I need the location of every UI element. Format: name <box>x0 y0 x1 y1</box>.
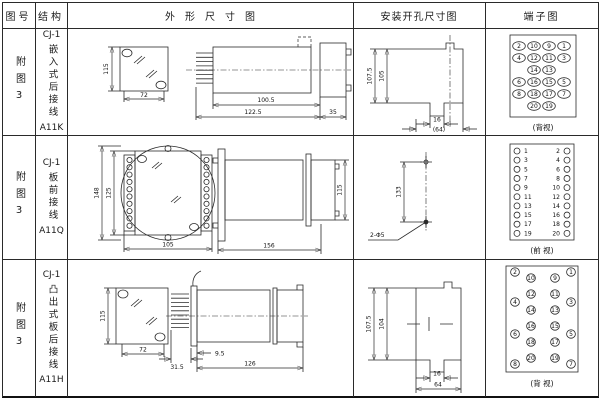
outline-drawing-row1: 115 72 100.5 122.5 35 <box>68 29 353 135</box>
terminal-number: 5 <box>569 331 573 338</box>
terminal-number: 7 <box>562 91 566 98</box>
terminal-grid: 2109141211314136161558181772019 <box>513 42 571 111</box>
terminal-number: 12 <box>527 291 535 298</box>
view-label: (前 视) <box>530 245 553 255</box>
terminal-circle <box>564 185 570 191</box>
terminal-number: 15 <box>551 323 559 330</box>
terminal-number: 8 <box>517 91 521 98</box>
terminal-circle <box>564 221 570 227</box>
terminal-number: 19 <box>524 230 532 237</box>
front-view: 115 72 <box>100 288 169 357</box>
terminal-circle <box>564 194 570 200</box>
terminal-number: 17 <box>524 221 532 228</box>
type-code: A11H <box>39 375 63 385</box>
fig-no-text: 附图3 <box>12 171 27 223</box>
terminal-number: 18 <box>527 339 535 346</box>
terminal-number: 20 <box>552 230 560 237</box>
terminal-number: 1 <box>524 148 528 155</box>
terminal-circle <box>514 194 520 200</box>
terminal-number: 20 <box>530 103 538 110</box>
header-terminal: 端子图 <box>485 2 598 28</box>
terminal-number: 16 <box>527 323 535 330</box>
terminal-number: 14 <box>527 307 535 314</box>
strip-circle <box>127 179 132 184</box>
dim-label: 35 <box>329 109 337 116</box>
terminal-circle <box>564 157 570 163</box>
pin-comb <box>196 53 213 83</box>
structure-name: 凸出式板后接线 <box>45 284 59 372</box>
terminal-drawing-row3: 1012141618209111315171924681357 (背 视) <box>486 260 598 396</box>
strip-circle <box>204 157 209 162</box>
terminal-number: 19 <box>545 103 553 110</box>
strip-circle <box>127 187 132 192</box>
side-view: 31.5 9.5 126 <box>159 271 308 372</box>
terminal-number: 2 <box>513 269 517 276</box>
terminal-number: 11 <box>524 194 532 201</box>
fig-no-row1: 附图3 <box>3 29 35 134</box>
hatch-mark <box>134 56 157 78</box>
mount-drawing-row1: 107.5 105 16 (64) <box>354 29 485 135</box>
outline-drawing-row3: 115 72 31.5 9.5 126 <box>68 260 353 396</box>
terminal-number: 9 <box>547 43 551 50</box>
dim-label: 107.5 <box>366 315 373 332</box>
header-mount-dims: 安装开孔尺寸图 <box>353 2 485 28</box>
terminal-number: 17 <box>545 91 553 98</box>
terminal-circle <box>514 157 520 163</box>
structure-name: 嵌入式后接线 <box>45 44 59 119</box>
table-border-right <box>598 2 599 397</box>
dim-label: 72 <box>139 347 147 354</box>
terminal-number: 11 <box>551 291 559 298</box>
terminal-number: 4 <box>513 299 517 306</box>
terminal-number: 18 <box>530 91 538 98</box>
terminal-number: 15 <box>524 212 532 219</box>
fig-no-row3: 附图3 <box>3 260 35 395</box>
terminal-circle <box>514 185 520 191</box>
strip-circle <box>127 157 132 162</box>
hatch-mark <box>131 299 157 325</box>
fig-no-text: 附图3 <box>12 56 27 108</box>
dim-label: 133 <box>396 186 403 198</box>
terminal-strip <box>127 157 209 228</box>
spec-sheet: 图号 结构 外形尺寸图 安装开孔尺寸图 端子图 附图3 附图3 附图3 CJ-1… <box>0 0 600 400</box>
dim-label: 107.5 <box>367 67 374 84</box>
terminal-number: 8 <box>556 175 560 182</box>
terminal-number: 13 <box>551 307 559 314</box>
model-label: CJ-1 <box>43 30 61 40</box>
terminal-number: 17 <box>551 339 559 346</box>
strip-circle <box>204 201 209 206</box>
terminal-number: 4 <box>556 157 560 164</box>
terminal-number: 16 <box>552 212 560 219</box>
terminal-number: 16 <box>530 79 538 86</box>
terminal-number: 18 <box>552 221 560 228</box>
dim-label: 105 <box>162 242 174 249</box>
strip-circle <box>204 194 209 199</box>
terminal-number: 3 <box>569 299 573 306</box>
dim-label: 115 <box>103 63 110 75</box>
header-structure: 结构 <box>35 2 67 28</box>
terminal-number: 4 <box>517 55 521 62</box>
terminal-circle <box>564 212 570 218</box>
terminal-circle <box>514 175 520 181</box>
dim-label: (64) <box>433 127 445 134</box>
terminal-number: 3 <box>562 55 566 62</box>
terminal-number: 2 <box>556 148 560 155</box>
terminal-circle <box>514 230 520 236</box>
mount-drawing-row2: 133 2-Φ5 <box>354 136 485 259</box>
structure-row1: CJ-1 嵌入式后接线 A11K <box>36 29 67 134</box>
terminal-number: 15 <box>545 79 553 86</box>
strip-circle <box>204 187 209 192</box>
header-outline-dims: 外形尺寸图 <box>67 2 353 28</box>
terminal-number: 5 <box>562 79 566 86</box>
front-view: 115 72 <box>103 47 168 102</box>
structure-row3: CJ-1 凸出式板后接线 A11H <box>36 260 67 395</box>
strip-circle <box>127 172 132 177</box>
terminal-circle <box>564 175 570 181</box>
side-view: 100.5 122.5 35 <box>186 37 351 120</box>
terminal-circle <box>564 230 570 236</box>
strip-circle <box>204 209 209 214</box>
dim-label: 16 <box>433 117 441 124</box>
structure-name: 板前接线 <box>45 172 59 222</box>
dim-label: 64 <box>434 382 442 389</box>
structure-row2: CJ-1 板前接线 A11Q <box>36 136 67 258</box>
terminal-number: 14 <box>530 67 538 74</box>
terminal-number: 1 <box>569 269 573 276</box>
terminal-number: 9 <box>524 185 528 192</box>
terminal-number: 6 <box>556 166 560 173</box>
strip-circle <box>204 179 209 184</box>
model-label: CJ-1 <box>43 270 61 280</box>
dim-label: 31.5 <box>170 364 184 371</box>
terminal-circle <box>564 148 570 154</box>
dim-label: 125 <box>106 187 113 199</box>
terminal-number: 9 <box>553 275 557 282</box>
side-view: 115 156 <box>213 149 349 254</box>
terminal-drawing-row1: 2109141211314136161558181772019 (背视) <box>486 29 598 135</box>
type-code: A11Q <box>39 226 64 236</box>
dim-label: 126 <box>244 361 256 368</box>
terminal-number: 12 <box>530 55 538 62</box>
dim-label: 156 <box>263 243 275 250</box>
terminal-number: 10 <box>552 185 560 192</box>
terminal-number: 3 <box>524 157 528 164</box>
terminal-number: 1 <box>562 43 566 50</box>
strip-circle <box>127 223 132 228</box>
bent-tab <box>193 271 201 286</box>
hole-label: 2-Φ5 <box>370 232 385 239</box>
terminal-number: 7 <box>524 175 528 182</box>
terminal-circle <box>514 166 520 172</box>
terminal-circle <box>514 203 520 209</box>
dim-label: 100.5 <box>257 97 274 104</box>
terminal-number: 10 <box>527 275 535 282</box>
terminal-grid: 1234567891011121314151617181920 <box>514 148 570 237</box>
dim-label: 104 <box>379 318 386 330</box>
terminal-circle <box>514 148 520 154</box>
dim-label: 122.5 <box>244 109 261 116</box>
table-border-bottom <box>2 396 599 398</box>
terminal-number: 7 <box>569 361 573 368</box>
dim-label: 9.5 <box>215 351 225 358</box>
fig-no-row2: 附图3 <box>3 136 35 258</box>
terminal-circle <box>564 203 570 209</box>
terminal-number: 2 <box>517 43 521 50</box>
dim-label: 72 <box>140 92 148 99</box>
terminal-drawing-row2: 1234567891011121314151617181920 (前 视) <box>486 136 598 259</box>
fig-no-text: 附图3 <box>12 302 27 354</box>
terminal-number: 11 <box>545 55 553 62</box>
strip-circle <box>127 201 132 206</box>
terminal-number: 20 <box>527 355 535 362</box>
terminal-circle <box>514 221 520 227</box>
model-label: CJ-1 <box>43 158 61 168</box>
outline-drawing-row2: 148 125 105 115 156 <box>68 136 353 259</box>
dim-label: 115 <box>337 184 344 196</box>
terminal-number: 19 <box>551 355 559 362</box>
terminal-number: 6 <box>517 79 521 86</box>
terminal-number: 14 <box>552 203 560 210</box>
strip-circle <box>127 194 132 199</box>
terminal-number: 8 <box>513 361 517 368</box>
view-label: (背视) <box>533 122 554 132</box>
terminal-circle <box>564 166 570 172</box>
dim-label: 16 <box>433 371 441 378</box>
strip-circle <box>204 172 209 177</box>
type-code: A11K <box>40 123 64 133</box>
terminal-number: 6 <box>513 331 517 338</box>
centerline-marks <box>407 317 453 331</box>
terminal-number: 10 <box>530 43 538 50</box>
dim-label: 148 <box>94 187 101 199</box>
terminal-circle <box>514 212 520 218</box>
dim-label: 115 <box>100 310 107 322</box>
terminal-number: 5 <box>524 166 528 173</box>
pin-comb <box>171 294 189 328</box>
terminal-grid: 1012141618209111315171924681357 <box>511 268 576 368</box>
hatch-mark <box>152 162 181 203</box>
terminal-number: 12 <box>552 194 560 201</box>
header-fig-no: 图号 <box>2 2 35 28</box>
terminal-number: 13 <box>524 203 532 210</box>
strip-circle <box>204 223 209 228</box>
dim-label: 105 <box>379 70 386 82</box>
front-view: 148 125 105 <box>94 146 216 253</box>
terminal-number: 13 <box>545 67 553 74</box>
strip-circle <box>127 209 132 214</box>
mount-drawing-row3: 107.5 104 16 64 <box>354 260 485 396</box>
view-label: (背 视) <box>530 378 553 388</box>
